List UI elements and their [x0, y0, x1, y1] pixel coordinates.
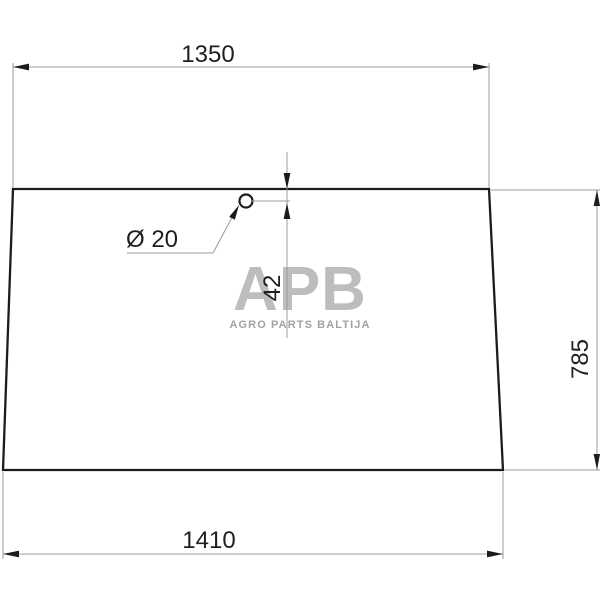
arrowhead-up-icon [594, 190, 600, 206]
mounting-hole [240, 195, 253, 208]
arrowhead-down-icon [284, 173, 291, 189]
dim-label-top-width: 1350 [181, 41, 234, 68]
watermark-tagline: AGRO PARTS BALTIJA [229, 319, 370, 331]
dim-label-height: 785 [567, 339, 594, 379]
technical-drawing-canvas: APB AGRO PARTS BALTIJA 1350 1410 [0, 0, 600, 600]
watermark: APB AGRO PARTS BALTIJA [229, 255, 370, 331]
arrowhead-right-icon [487, 551, 503, 558]
dimension-bottom-width: 1410 [3, 472, 503, 559]
arrowhead-up-icon [284, 203, 291, 219]
arrowhead-down-icon [594, 454, 600, 470]
drawing-page: APB AGRO PARTS BALTIJA 1350 1410 [0, 0, 600, 600]
leader-arrowhead-icon [229, 205, 239, 220]
dimension-top-width: 1350 [13, 41, 489, 188]
callout-hole-diameter: Ø 20 [126, 205, 239, 253]
dim-label-hole-diameter: Ø 20 [126, 226, 178, 253]
watermark-logo: APB [233, 255, 367, 324]
arrowhead-left-icon [3, 551, 19, 558]
dimension-height: 785 [491, 190, 600, 470]
arrowhead-left-icon [13, 64, 29, 71]
arrowhead-right-icon [473, 64, 489, 71]
dim-label-bottom-width: 1410 [182, 527, 235, 554]
dim-label-hole-offset: 42 [259, 275, 286, 302]
